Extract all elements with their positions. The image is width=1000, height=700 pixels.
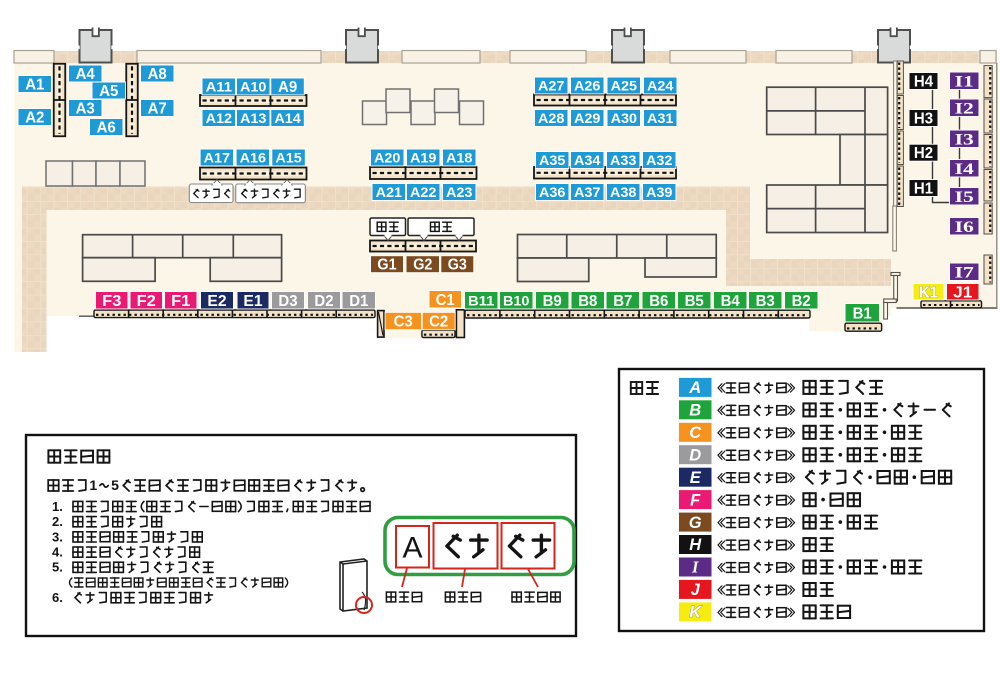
- svg-text:B11: B11: [468, 293, 495, 309]
- svg-text:1.: 1.: [52, 499, 63, 514]
- svg-text:A6: A6: [97, 120, 117, 137]
- svg-text:A35: A35: [539, 153, 566, 169]
- svg-text:A13: A13: [240, 111, 267, 127]
- svg-text:A2: A2: [25, 110, 44, 127]
- svg-text:A21: A21: [376, 185, 403, 201]
- svg-text:C: C: [689, 424, 702, 442]
- svg-text:A7: A7: [148, 101, 167, 118]
- svg-text:2.: 2.: [52, 514, 63, 529]
- svg-text:E1: E1: [243, 293, 263, 310]
- svg-text:F2: F2: [137, 293, 156, 310]
- svg-text:E: E: [690, 469, 702, 487]
- svg-text:A25: A25: [611, 79, 638, 95]
- svg-text:C1: C1: [436, 292, 456, 309]
- svg-text:6.: 6.: [52, 590, 63, 605]
- svg-text:B5: B5: [685, 293, 705, 310]
- svg-text:3.: 3.: [52, 529, 63, 544]
- svg-text:A26: A26: [574, 79, 601, 95]
- svg-text:G1: G1: [377, 257, 397, 274]
- svg-text:D3: D3: [278, 293, 298, 310]
- svg-text:A3: A3: [76, 101, 96, 118]
- svg-text:B2: B2: [792, 293, 811, 310]
- svg-text:A31: A31: [647, 111, 674, 127]
- svg-text:K: K: [689, 604, 702, 622]
- svg-text:A8: A8: [148, 66, 168, 83]
- svg-text:J1: J1: [953, 284, 973, 301]
- svg-text:I5: I5: [955, 189, 975, 206]
- svg-text:A12: A12: [206, 111, 233, 127]
- svg-text:C3: C3: [394, 314, 414, 331]
- svg-text:5: 5: [111, 477, 119, 493]
- svg-text:B7: B7: [613, 293, 632, 310]
- svg-text:I7: I7: [955, 264, 975, 281]
- svg-text:A27: A27: [538, 79, 565, 95]
- svg-text:B4: B4: [721, 293, 741, 310]
- svg-text:D: D: [689, 446, 701, 464]
- svg-text:H3: H3: [914, 111, 934, 128]
- svg-text:A: A: [688, 379, 701, 397]
- svg-text:C2: C2: [429, 314, 448, 331]
- svg-text:H2: H2: [914, 145, 933, 162]
- svg-text:A33: A33: [610, 153, 637, 169]
- svg-text:A22: A22: [410, 185, 437, 201]
- svg-text:K1: K1: [919, 284, 939, 301]
- svg-text:A11: A11: [206, 80, 233, 96]
- svg-text:A5: A5: [99, 83, 119, 100]
- svg-text:A: A: [402, 532, 422, 565]
- svg-text:G2: G2: [413, 257, 432, 274]
- svg-text:G: G: [689, 514, 702, 532]
- svg-text:A36: A36: [539, 185, 566, 201]
- svg-text:D1: D1: [349, 293, 369, 310]
- svg-text:A17: A17: [204, 151, 231, 167]
- svg-text:A28: A28: [538, 111, 565, 127]
- svg-text:A20: A20: [374, 151, 401, 167]
- svg-text:A23: A23: [446, 185, 473, 201]
- svg-text:A39: A39: [646, 185, 673, 201]
- svg-text:A29: A29: [574, 111, 601, 127]
- svg-text:H1: H1: [914, 181, 934, 198]
- svg-text:B: B: [689, 402, 701, 420]
- svg-text:A15: A15: [275, 151, 302, 167]
- svg-text:A18: A18: [446, 151, 473, 167]
- svg-text:A16: A16: [240, 151, 267, 167]
- svg-text:I2: I2: [955, 100, 975, 117]
- svg-text:5.: 5.: [52, 560, 63, 575]
- svg-text:A38: A38: [610, 185, 637, 201]
- svg-text:I6: I6: [955, 219, 975, 236]
- svg-text:H4: H4: [914, 74, 934, 91]
- svg-text:E2: E2: [207, 293, 226, 310]
- svg-text:A9: A9: [278, 79, 298, 96]
- svg-text:B1: B1: [853, 305, 873, 322]
- svg-text:J: J: [691, 581, 701, 599]
- svg-text:1: 1: [89, 477, 97, 493]
- svg-text:B6: B6: [649, 293, 669, 310]
- svg-text:A10: A10: [240, 80, 267, 96]
- svg-text:A32: A32: [646, 153, 673, 169]
- svg-text:A34: A34: [574, 153, 601, 169]
- svg-text:A24: A24: [647, 79, 674, 95]
- svg-text:I: I: [691, 558, 699, 577]
- svg-text:H: H: [689, 536, 702, 554]
- svg-text:A37: A37: [574, 185, 601, 201]
- svg-text:4.: 4.: [52, 545, 63, 560]
- svg-text:D2: D2: [314, 293, 333, 310]
- svg-text:A19: A19: [410, 151, 437, 167]
- svg-text:B8: B8: [578, 293, 598, 310]
- svg-text:B3: B3: [756, 293, 776, 310]
- svg-text:I4: I4: [955, 161, 975, 178]
- svg-text:I1: I1: [955, 73, 974, 90]
- svg-text:A30: A30: [611, 111, 638, 127]
- svg-text:F3: F3: [102, 293, 122, 310]
- svg-text:G3: G3: [448, 257, 468, 274]
- svg-text:B9: B9: [543, 293, 563, 310]
- svg-text:A1: A1: [25, 77, 45, 94]
- svg-text:I3: I3: [955, 131, 975, 148]
- svg-text:F1: F1: [171, 293, 191, 310]
- svg-text:B10: B10: [503, 293, 530, 309]
- svg-text:A4: A4: [76, 66, 96, 83]
- svg-text:A14: A14: [274, 111, 301, 127]
- svg-text:F: F: [690, 491, 701, 509]
